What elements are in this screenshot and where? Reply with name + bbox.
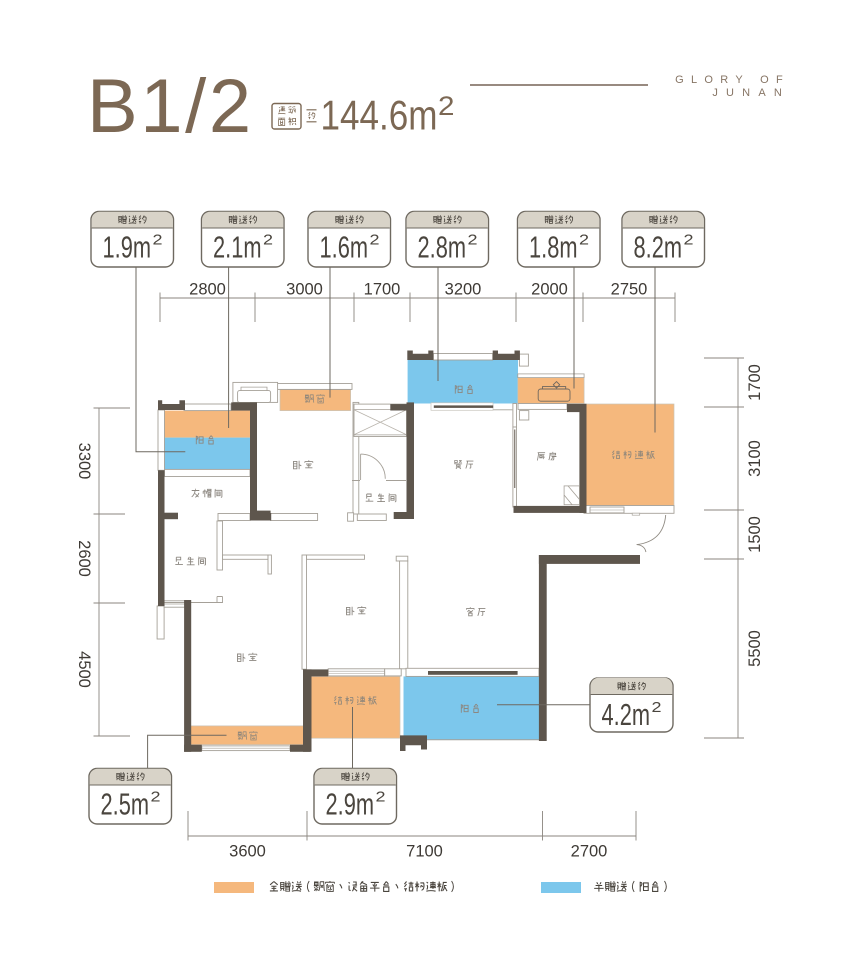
svg-text:2.8m: 2.8m <box>418 229 467 264</box>
svg-text:1500: 1500 <box>746 516 764 553</box>
svg-text:2.5m: 2.5m <box>101 786 150 821</box>
svg-text:2750: 2750 <box>611 281 648 299</box>
svg-text:2: 2 <box>684 231 694 248</box>
svg-text:3200: 3200 <box>445 281 482 299</box>
svg-text:2: 2 <box>376 788 386 805</box>
svg-text:2: 2 <box>468 231 478 248</box>
svg-text:3600: 3600 <box>229 843 266 861</box>
svg-text:4500: 4500 <box>75 651 93 688</box>
svg-text:144.6m: 144.6m <box>321 92 438 139</box>
svg-text:5500: 5500 <box>746 630 764 667</box>
svg-text:1700: 1700 <box>364 281 401 299</box>
svg-text:B1/2: B1/2 <box>87 64 254 149</box>
svg-text:2.1m: 2.1m <box>213 229 262 264</box>
svg-text:2: 2 <box>263 231 273 248</box>
svg-text:1.9m: 1.9m <box>103 229 152 264</box>
svg-text:1.8m: 1.8m <box>529 229 578 264</box>
svg-text:3000: 3000 <box>286 281 323 299</box>
svg-text:2.9m: 2.9m <box>326 786 375 821</box>
svg-text:2: 2 <box>151 788 161 805</box>
svg-text:2000: 2000 <box>531 281 568 299</box>
svg-text:1700: 1700 <box>746 364 764 401</box>
svg-text:GLORY OF: GLORY OF <box>675 74 790 86</box>
svg-text:2: 2 <box>370 231 380 248</box>
svg-text:1.6m: 1.6m <box>320 229 369 264</box>
svg-text:2: 2 <box>579 231 589 248</box>
svg-text:3300: 3300 <box>75 443 93 480</box>
svg-text:2: 2 <box>438 91 455 121</box>
svg-text:2: 2 <box>153 231 163 248</box>
svg-text:3100: 3100 <box>746 440 764 477</box>
svg-text:2600: 2600 <box>75 540 93 577</box>
svg-text:2800: 2800 <box>189 281 226 299</box>
svg-text:2700: 2700 <box>571 843 608 861</box>
svg-text:7100: 7100 <box>406 843 443 861</box>
svg-text:8.2m: 8.2m <box>634 229 683 264</box>
svg-text:2: 2 <box>652 699 662 716</box>
svg-text:4.2m: 4.2m <box>602 697 651 732</box>
svg-text:JUNAN: JUNAN <box>712 87 790 99</box>
